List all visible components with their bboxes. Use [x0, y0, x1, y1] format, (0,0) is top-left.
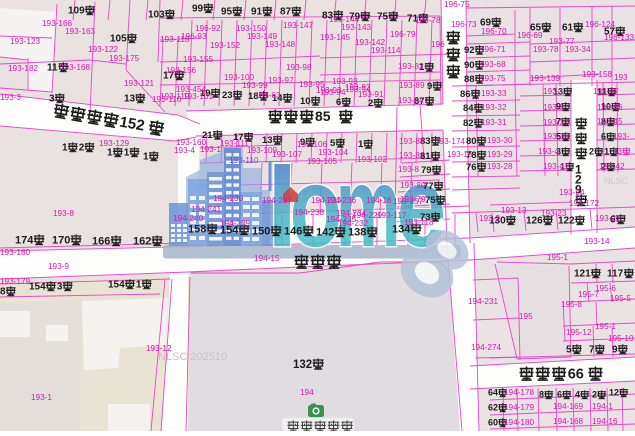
- svg-text:103: 103: [148, 10, 165, 21]
- svg-text:194-179: 194-179: [504, 403, 534, 412]
- svg-text:193-24: 193-24: [559, 188, 585, 197]
- svg-text:1: 1: [136, 280, 142, 291]
- svg-text:194-169: 194-169: [553, 402, 583, 411]
- svg-text:92: 92: [464, 45, 475, 56]
- svg-text:194-240: 194-240: [173, 214, 203, 223]
- svg-text:194-230: 194-230: [213, 194, 243, 203]
- svg-text:193-32: 193-32: [481, 103, 507, 112]
- svg-text:194-16: 194-16: [592, 417, 618, 426]
- svg-text:154: 154: [108, 280, 125, 291]
- svg-text:196-71: 196-71: [480, 45, 506, 54]
- svg-text:194-274: 194-274: [471, 343, 501, 352]
- svg-text:193-68: 193-68: [480, 60, 506, 69]
- svg-text:193-37: 193-37: [543, 118, 569, 127]
- svg-text:193-42: 193-42: [599, 162, 625, 171]
- svg-text:193-152: 193-152: [210, 41, 240, 50]
- svg-text:193-118: 193-118: [160, 35, 190, 44]
- svg-text:2: 2: [79, 143, 85, 154]
- svg-text:146: 146: [284, 226, 302, 238]
- svg-text:193-34: 193-34: [565, 45, 591, 54]
- svg-text:193-4: 193-4: [174, 146, 195, 155]
- svg-text:193-119: 193-119: [160, 92, 190, 101]
- svg-text:2: 2: [368, 98, 373, 109]
- svg-text:193-84: 193-84: [398, 96, 424, 105]
- svg-text:193-118: 193-118: [404, 218, 434, 227]
- svg-text:76: 76: [466, 162, 477, 173]
- svg-text:3: 3: [49, 94, 55, 105]
- svg-text:60: 60: [488, 418, 498, 428]
- svg-text:193-156: 193-156: [166, 66, 196, 75]
- svg-text:1: 1: [124, 148, 130, 159]
- svg-text:75: 75: [377, 12, 389, 23]
- svg-text:193-145: 193-145: [320, 33, 350, 42]
- svg-text:193-99: 193-99: [242, 81, 268, 90]
- svg-text:193-102: 193-102: [357, 155, 387, 164]
- svg-text:193-143: 193-143: [341, 23, 371, 32]
- svg-text:82: 82: [463, 118, 474, 129]
- svg-text:193-122: 193-122: [88, 45, 118, 54]
- svg-text:193-94: 193-94: [320, 88, 346, 97]
- svg-text:193-47: 193-47: [593, 87, 619, 96]
- svg-text:196: 196: [431, 40, 445, 49]
- svg-text:193-9: 193-9: [48, 262, 69, 271]
- svg-text:193-41: 193-41: [543, 162, 569, 171]
- svg-text:3: 3: [57, 282, 63, 293]
- svg-text:166: 166: [92, 236, 110, 248]
- svg-text:193-104: 193-104: [318, 148, 348, 157]
- svg-text:194-168: 194-168: [553, 417, 583, 426]
- svg-text:193-129: 193-129: [99, 139, 129, 148]
- svg-text:10: 10: [300, 96, 311, 107]
- svg-text:1: 1: [107, 148, 113, 159]
- svg-text:8: 8: [0, 287, 6, 298]
- svg-text:99: 99: [192, 4, 204, 15]
- svg-text:193-21: 193-21: [595, 214, 621, 223]
- svg-text:162: 162: [133, 236, 151, 248]
- svg-text:193-8: 193-8: [53, 209, 74, 218]
- svg-text:132: 132: [293, 359, 312, 371]
- svg-text:193-172: 193-172: [569, 199, 599, 208]
- svg-text:193-13: 193-13: [501, 206, 527, 215]
- svg-text:195: 195: [519, 312, 533, 321]
- svg-text:79: 79: [421, 165, 432, 176]
- svg-text:193-123: 193-123: [10, 37, 40, 46]
- svg-text:193-23: 193-23: [541, 209, 567, 218]
- svg-text:75: 75: [425, 195, 436, 206]
- svg-text:195-5: 195-5: [610, 294, 631, 303]
- svg-text:109: 109: [68, 6, 85, 17]
- svg-text:6: 6: [557, 390, 562, 400]
- svg-text:196-79: 196-79: [390, 30, 416, 39]
- svg-text:193-63: 193-63: [255, 91, 281, 100]
- svg-text:194-237: 194-237: [262, 196, 292, 205]
- svg-text:196-70: 196-70: [481, 27, 507, 36]
- svg-text:193-14: 193-14: [584, 237, 610, 246]
- svg-text:86: 86: [460, 89, 471, 100]
- svg-text:194-1: 194-1: [592, 402, 613, 411]
- svg-text:8: 8: [539, 390, 544, 400]
- svg-text:193-15: 193-15: [447, 150, 473, 159]
- svg-text:6: 6: [336, 97, 341, 108]
- svg-text:117: 117: [607, 269, 624, 280]
- svg-text:194-238: 194-238: [294, 208, 324, 217]
- svg-text:193-78: 193-78: [533, 45, 559, 54]
- svg-text:13: 13: [124, 94, 136, 105]
- svg-text:193-180: 193-180: [0, 248, 30, 257]
- svg-text:158: 158: [188, 224, 206, 236]
- svg-text:193-147: 193-147: [283, 21, 313, 30]
- svg-text:66: 66: [568, 367, 584, 383]
- svg-text:193-158: 193-158: [582, 70, 612, 79]
- svg-text:193-163: 193-163: [65, 27, 95, 36]
- svg-text:87: 87: [280, 7, 292, 18]
- svg-text:193-8: 193-8: [398, 165, 419, 174]
- svg-text:195-12: 195-12: [566, 328, 592, 337]
- svg-text:193-80: 193-80: [400, 181, 426, 190]
- svg-text:194-231: 194-231: [468, 297, 498, 306]
- svg-text:193-12: 193-12: [146, 344, 172, 353]
- svg-text:194-16: 194-16: [366, 196, 392, 205]
- svg-text:105: 105: [110, 34, 127, 45]
- svg-text:150: 150: [252, 226, 270, 238]
- svg-text:195-8: 195-8: [561, 300, 582, 309]
- svg-text:193-148: 193-148: [265, 40, 295, 49]
- svg-text:23: 23: [222, 90, 233, 101]
- svg-text:196-73: 196-73: [451, 20, 477, 29]
- svg-text:1: 1: [62, 143, 68, 154]
- svg-text:174: 174: [15, 235, 34, 247]
- svg-text:64: 64: [488, 388, 498, 398]
- svg-text:193-168: 193-168: [60, 63, 90, 72]
- svg-text:196-69: 196-69: [517, 31, 543, 40]
- svg-text:194-229: 194-229: [352, 211, 382, 220]
- svg-text:193-35: 193-35: [543, 132, 569, 141]
- svg-text:193-88: 193-88: [399, 137, 425, 146]
- svg-text:193-1: 193-1: [543, 87, 564, 96]
- svg-text:193-105: 193-105: [307, 157, 337, 166]
- svg-text:193-139: 193-139: [530, 74, 560, 83]
- svg-text:196-124: 196-124: [585, 20, 615, 29]
- svg-text:1: 1: [143, 152, 149, 163]
- svg-text:193-33: 193-33: [481, 89, 507, 98]
- svg-text:193-4: 193-4: [538, 147, 559, 156]
- svg-text:193-175: 193-175: [109, 54, 139, 63]
- svg-text:194: 194: [300, 388, 314, 397]
- svg-text:196-133: 196-133: [604, 33, 634, 42]
- svg-text:193-155: 193-155: [183, 55, 213, 64]
- svg-text:193-121: 193-121: [124, 79, 154, 88]
- svg-text:194-15: 194-15: [254, 254, 280, 263]
- svg-text:7: 7: [589, 345, 595, 356]
- svg-text:193-3: 193-3: [0, 93, 21, 102]
- svg-text:196-78: 196-78: [415, 16, 441, 25]
- svg-text:5: 5: [566, 345, 572, 356]
- svg-text:193-157: 193-157: [393, 197, 423, 206]
- svg-text:193-114: 193-114: [371, 46, 401, 55]
- svg-text:9: 9: [427, 81, 432, 92]
- svg-text:193-179: 193-179: [0, 277, 30, 286]
- svg-text:195-7: 195-7: [578, 290, 599, 299]
- svg-text:193-81: 193-81: [399, 151, 425, 160]
- svg-text:91: 91: [251, 7, 263, 18]
- svg-text:194-232: 194-232: [338, 219, 368, 228]
- svg-text:61: 61: [562, 23, 574, 34]
- svg-text:193-75: 193-75: [480, 74, 506, 83]
- svg-text:88: 88: [464, 74, 475, 85]
- svg-text:11: 11: [47, 63, 58, 74]
- svg-text:193-: 193-: [613, 132, 630, 141]
- svg-text:1: 1: [358, 139, 364, 150]
- svg-text:193: 193: [614, 73, 628, 82]
- svg-text:193-3: 193-3: [543, 103, 564, 112]
- svg-text:193-28: 193-28: [487, 162, 513, 171]
- svg-text:85: 85: [315, 108, 331, 124]
- svg-text:194-236: 194-236: [326, 196, 356, 205]
- svg-text:2: 2: [589, 147, 594, 157]
- svg-text:194-239: 194-239: [220, 219, 250, 228]
- svg-text:193-2: 193-2: [479, 214, 500, 223]
- svg-text:121: 121: [574, 269, 591, 280]
- svg-text:194-178: 194-178: [504, 388, 534, 397]
- svg-text:193-30: 193-30: [487, 136, 513, 145]
- svg-text:1: 1: [604, 147, 609, 157]
- svg-text:193-31: 193-31: [481, 118, 507, 127]
- svg-text:62: 62: [488, 403, 498, 413]
- svg-text:193-107: 193-107: [272, 150, 302, 159]
- svg-text:196-75: 196-75: [444, 0, 470, 9]
- svg-text:193-45: 193-45: [597, 117, 623, 126]
- svg-text:194-241: 194-241: [191, 205, 221, 214]
- svg-text:154: 154: [29, 282, 46, 293]
- svg-text:193-89: 193-89: [399, 81, 425, 90]
- svg-text:13: 13: [262, 135, 273, 146]
- svg-text:4: 4: [575, 390, 580, 400]
- svg-text:9: 9: [612, 345, 618, 356]
- svg-text:95: 95: [221, 7, 233, 18]
- svg-text:195-1: 195-1: [547, 253, 568, 262]
- svg-text:193-1: 193-1: [200, 145, 221, 154]
- svg-text:142: 142: [316, 227, 334, 239]
- svg-text:12: 12: [609, 388, 619, 398]
- svg-text:195-10: 195-10: [608, 334, 634, 343]
- svg-text:193-46: 193-46: [597, 103, 623, 112]
- svg-text:193-97: 193-97: [268, 76, 294, 85]
- svg-text:6: 6: [601, 132, 606, 142]
- svg-text:195-1: 195-1: [595, 322, 616, 331]
- svg-text:193-29: 193-29: [487, 150, 513, 159]
- svg-text:170: 170: [52, 235, 70, 247]
- svg-text:193-182: 193-182: [8, 64, 38, 73]
- svg-text:193-111: 193-111: [220, 139, 249, 148]
- svg-text:193-98: 193-98: [286, 63, 312, 72]
- svg-text:138: 138: [348, 227, 366, 239]
- svg-text:2: 2: [592, 390, 597, 400]
- svg-text:193-110: 193-110: [229, 156, 259, 165]
- svg-text:90: 90: [464, 60, 475, 71]
- svg-text:84: 84: [463, 103, 474, 114]
- svg-text:13: 13: [613, 147, 623, 156]
- svg-text:193-174: 193-174: [435, 137, 465, 146]
- svg-text:193-82: 193-82: [398, 62, 424, 71]
- svg-text:NLSC: NLSC: [604, 176, 629, 186]
- svg-text:193-1: 193-1: [31, 393, 52, 402]
- svg-text:193-92: 193-92: [345, 83, 371, 92]
- svg-text:80: 80: [466, 136, 477, 147]
- svg-text:194-180: 194-180: [504, 418, 534, 427]
